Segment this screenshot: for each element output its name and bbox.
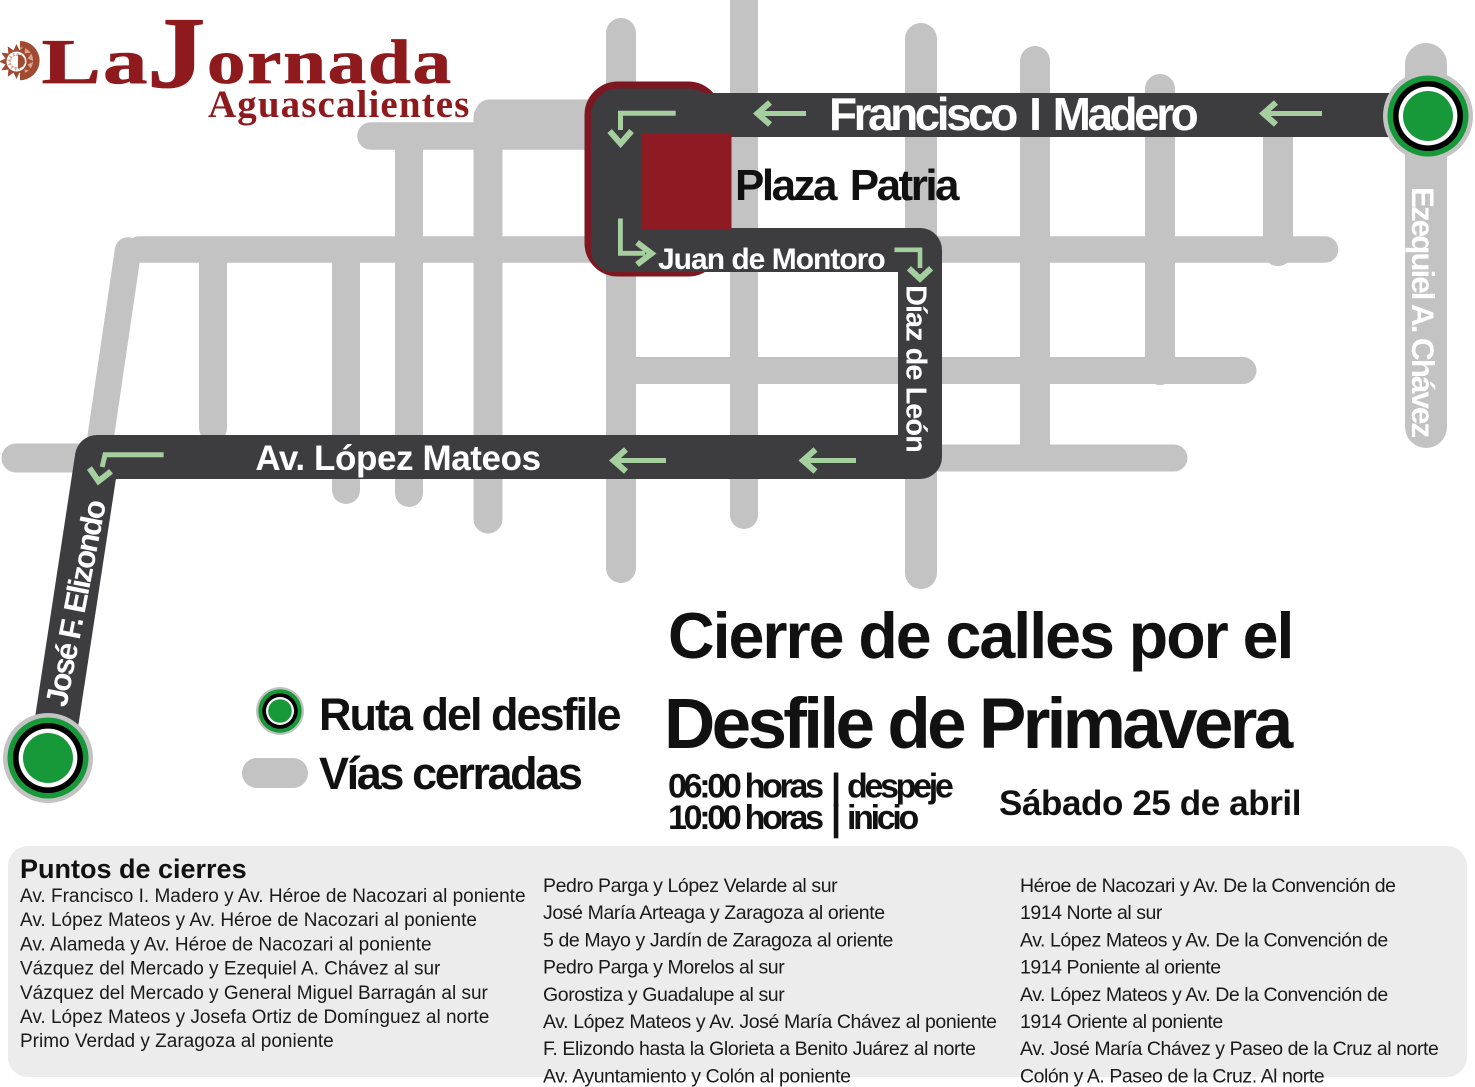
svg-text:La: La xyxy=(42,27,150,97)
svg-text:Héroe de Nacozari y Av. De la: Héroe de Nacozari y Av. De la Convención… xyxy=(1020,875,1396,897)
svg-text:Cierre de calles por el: Cierre de calles por el xyxy=(668,600,1292,672)
svg-text:Aguascalientes: Aguascalientes xyxy=(208,83,470,126)
svg-text:Pedro Parga y López Velarde a: Pedro Parga y López Velarde al sur xyxy=(543,875,838,897)
svg-text:Av. López Mateos y Av. De la C: Av. López Mateos y Av. De la Convención … xyxy=(1020,984,1388,1006)
svg-text:Pedro Parga y Morelos al sur: Pedro Parga y Morelos al sur xyxy=(543,957,785,979)
svg-text:10:00 horas: 10:00 horas xyxy=(668,799,823,837)
svg-text:Av. López Mateos: Av. López Mateos xyxy=(255,439,540,478)
svg-text:1914 Norte al sur: 1914 Norte al sur xyxy=(1020,902,1163,924)
svg-text:Vázquez del Mercado y General: Vázquez del Mercado y General Miguel Bar… xyxy=(20,983,489,1004)
svg-text:Desfile de Primavera: Desfile de Primavera xyxy=(664,685,1294,764)
svg-text:1914 Poniente al oriente: 1914 Poniente al oriente xyxy=(1020,957,1221,979)
svg-text:5 de Mayo y Jardín de Zaragoza: 5 de Mayo y Jardín de Zaragoza al orient… xyxy=(543,929,893,951)
svg-text:Gorostiza y Guadalupe al sur: Gorostiza y Guadalupe al sur xyxy=(543,984,785,1006)
svg-text:Av. José María Chávez y Paseo: Av. José María Chávez y Paseo de la Cruz… xyxy=(1020,1038,1438,1060)
svg-text:Av. Alameda y Av. Héroe de Nac: Av. Alameda y Av. Héroe de Nacozari al p… xyxy=(20,934,432,955)
svg-text:Colón y A. Paseo de la Cruz. A: Colón y A. Paseo de la Cruz. Al norte xyxy=(1020,1065,1324,1087)
svg-text:Puntos de cierres: Puntos de cierres xyxy=(20,854,247,884)
svg-text:Av. López Mateos y Josefa Orti: Av. López Mateos y Josefa Ortiz de Domín… xyxy=(20,1007,489,1028)
svg-text:F. Elizondo hasta la Glorieta: F. Elizondo hasta la Glorieta a Benito J… xyxy=(543,1038,976,1060)
svg-text:Av. López Mateos y Av. Héroe d: Av. López Mateos y Av. Héroe de Nacozari… xyxy=(20,910,477,931)
svg-text:Díaz de León: Díaz de León xyxy=(900,285,932,452)
svg-text:Vázquez del Mercado y Ezequiel: Vázquez del Mercado y Ezequiel A. Chávez… xyxy=(20,959,441,980)
svg-text:1914 Oriente al poniente: 1914 Oriente al poniente xyxy=(1020,1011,1223,1033)
svg-text:Av. Ayuntamiento y Colón al po: Av. Ayuntamiento y Colón al poniente xyxy=(543,1065,851,1087)
svg-text:Sábado 25 de abril: Sábado 25 de abril xyxy=(999,784,1301,823)
svg-text:inicio: inicio xyxy=(847,799,919,837)
svg-text:Av. López Mateos y Av. De la C: Av. López Mateos y Av. De la Convención … xyxy=(1020,929,1388,951)
svg-text:J: J xyxy=(147,0,206,109)
svg-text:Av. Francisco I. Madero y Av.: Av. Francisco I. Madero y Av. Héroe de N… xyxy=(20,886,526,907)
svg-text:Francisco I Madero: Francisco I Madero xyxy=(829,88,1198,140)
svg-text:Ezequiel A. Chávez: Ezequiel A. Chávez xyxy=(1405,187,1441,437)
svg-text:Vías cerradas: Vías cerradas xyxy=(319,748,582,799)
svg-text:Ruta del desfile: Ruta del desfile xyxy=(319,689,621,740)
svg-text:|: | xyxy=(831,798,841,840)
svg-text:Juan de Montoro: Juan de Montoro xyxy=(658,243,885,276)
svg-text:Plaza Patria: Plaza Patria xyxy=(735,161,960,210)
svg-text:Av. López Mateos y Av. José Ma: Av. López Mateos y Av. José María Chávez… xyxy=(543,1011,997,1033)
svg-text:Primo Verdad y Zaragoza al pon: Primo Verdad y Zaragoza al poniente xyxy=(20,1031,334,1052)
svg-text:José María Arteaga y Zaragoza: José María Arteaga y Zaragoza al oriente xyxy=(543,902,885,924)
